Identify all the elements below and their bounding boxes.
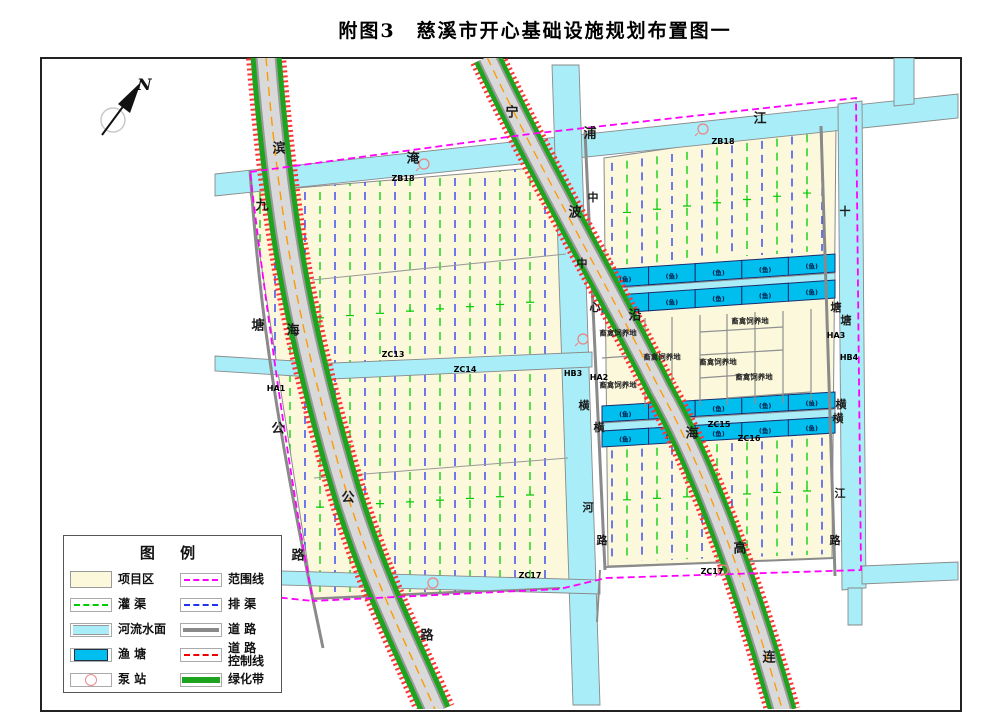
right-river-stub: [848, 588, 862, 625]
legend-swatch-area-river: [70, 623, 112, 637]
legend-swatch-line-magenta: [180, 573, 222, 587]
livestock-area-label: 畜禽饲养地: [735, 372, 773, 382]
road-name-label: 公: [341, 491, 354, 506]
legend-swatch-line-red: [180, 648, 222, 662]
road-name-label: 路: [291, 548, 305, 564]
road-name-label: 宁: [505, 105, 518, 121]
legend-swatch-line-blue: [180, 598, 222, 612]
zone-code-label: HA3: [827, 331, 845, 340]
livestock-area-label: 畜禽饲养地: [643, 352, 681, 362]
pond-label: (鱼): [666, 271, 678, 280]
legend-label: 灌 渠: [118, 598, 180, 611]
road-name-label: 海: [286, 323, 299, 339]
road-name-label: 江: [835, 486, 846, 500]
pond-label: (鱼): [619, 410, 631, 419]
livestock-area-label: 畜禽饲养地: [599, 328, 637, 338]
top-right-stub: [894, 58, 914, 106]
legend-label: 泵 站: [118, 673, 180, 686]
pond-label: (鱼): [759, 265, 771, 274]
north-label: N: [136, 75, 153, 94]
zone-code-label: ZC17: [519, 571, 542, 580]
pond-label: (鱼): [805, 262, 817, 271]
road-name-label: 中: [577, 256, 588, 270]
zone-code-label: ZC17: [701, 567, 724, 576]
road-name-label: 塘: [831, 300, 842, 314]
pond-label: (鱼): [712, 268, 724, 277]
livestock-area-label: 畜禽饲养地: [699, 357, 737, 367]
road-name-label: 海: [685, 426, 698, 442]
road-name-label: 横: [833, 411, 845, 425]
legend-swatch-area-pond: [70, 648, 112, 662]
legend-grid: 项目区范围线灌 渠排 渠河流水面道 路渔 塘道 路 控制线泵 站绿化带: [64, 563, 281, 692]
road-name-label: 河: [583, 500, 594, 514]
legend-label: 绿化带: [228, 673, 277, 686]
road-name-label: 心: [590, 301, 601, 314]
center-road-stub: [597, 570, 600, 622]
zone-code-label: ZC14: [454, 365, 477, 374]
zone-code-label: HB4: [840, 353, 859, 362]
zone-code-label: ZC13: [382, 350, 405, 359]
livestock-area-label: 畜禽饲养地: [731, 316, 769, 326]
road-name-label: 路: [830, 533, 842, 547]
legend-label: 道 路 控制线: [228, 642, 277, 667]
legend-label: 范围线: [228, 573, 277, 586]
road-name-label: 中: [588, 190, 599, 204]
road-name-label: 公: [271, 422, 284, 437]
legend-label: 道 路: [228, 623, 277, 636]
road-name-label: 十: [840, 204, 851, 218]
legend-swatch-area-project: [70, 571, 112, 588]
road-name-label: 连: [762, 650, 776, 666]
zone-code-label: ZB18: [391, 174, 414, 183]
road-name-label: 高: [733, 541, 746, 557]
zone-code-label: HA1: [267, 384, 286, 393]
road-name-label: 横: [594, 420, 606, 434]
road-name-label: 横: [836, 397, 848, 411]
road-name-label: 路: [597, 533, 609, 547]
legend-label: 渔 塘: [118, 648, 180, 661]
pond-label: (鱼): [805, 288, 817, 297]
legend-title: 图 例: [64, 542, 281, 563]
road-name-label: 淹: [406, 151, 420, 167]
pond-label: (鱼): [666, 297, 678, 306]
pond-label: (鱼): [712, 294, 724, 303]
zone-code-label: ZC16: [738, 434, 761, 443]
planning-map-page: 附图3 慈溪市开心基础设施规划布置图一: [0, 0, 1000, 725]
road-name-label: 路: [420, 628, 434, 644]
livestock-area-label: 畜禽饲养地: [599, 380, 637, 390]
legend-swatch-line-greenbelt: [180, 673, 222, 687]
legend-label: 河流水面: [118, 623, 180, 636]
pond-label: (鱼): [805, 398, 817, 407]
legend-swatch-line-road: [180, 623, 222, 637]
road-name-label: 九: [254, 199, 268, 214]
road-name-label: 浦: [583, 126, 596, 142]
legend-box: 图 例 项目区范围线灌 渠排 渠河流水面道 路渔 塘道 路 控制线泵 站绿化带: [63, 535, 282, 693]
pond-label: (鱼): [759, 291, 771, 300]
road-name-label: 滨: [272, 141, 285, 157]
road-name-label: 横: [579, 398, 591, 412]
legend-swatch-line-green: [70, 598, 112, 612]
legend-label: 项目区: [118, 573, 180, 586]
legend-swatch-pump: [70, 673, 112, 687]
pond-label: (鱼): [805, 423, 817, 432]
north-arrow: N: [101, 75, 153, 135]
pond-label: (鱼): [619, 435, 631, 444]
right-river: [838, 101, 866, 590]
legend-label: 排 渠: [228, 598, 277, 611]
right-horizontal-river: [862, 562, 958, 584]
road-name-label: 波: [568, 205, 582, 221]
road-name-label: 塘: [841, 313, 852, 327]
pond-label: (鱼): [759, 426, 771, 435]
zone-code-label: ZC15: [708, 420, 731, 429]
zone-code-label: ZB18: [711, 137, 734, 146]
pond-label: (鱼): [712, 404, 724, 413]
road-name-label: 塘: [251, 318, 264, 334]
road-name-label: 江: [753, 111, 766, 127]
road-name-label: 沿: [628, 309, 641, 324]
zone-code-label: HB3: [564, 369, 582, 378]
pond-label: (鱼): [759, 401, 771, 410]
pond-label: (鱼): [712, 429, 724, 438]
